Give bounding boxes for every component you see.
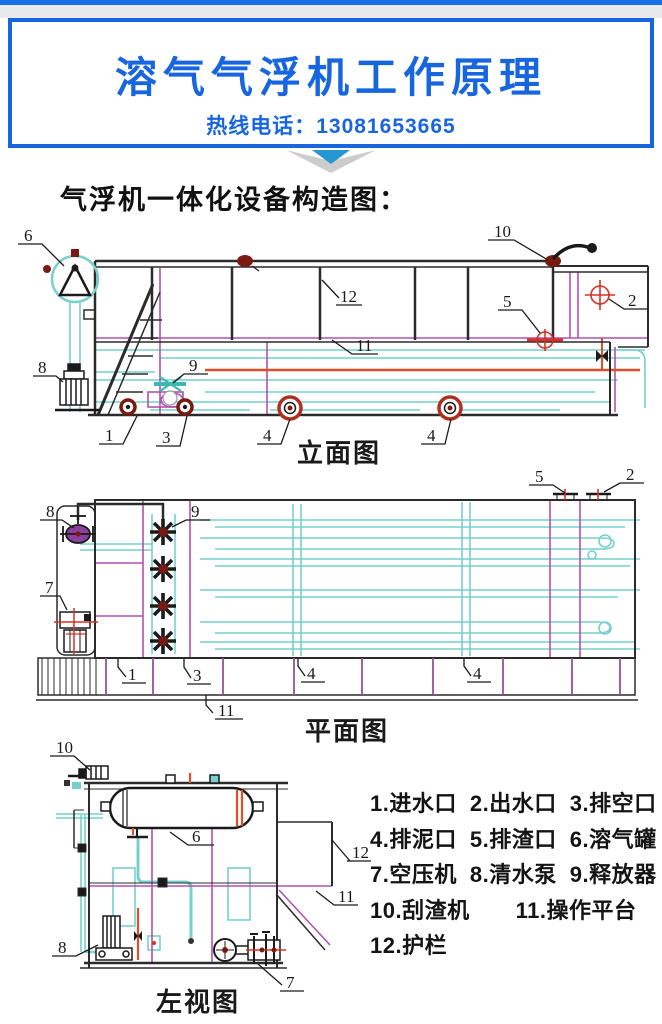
part-number-label: 1 (105, 426, 114, 445)
part-number-label: 8 (38, 358, 47, 377)
legend-item: 1.进水口 (370, 791, 457, 816)
part-number-label: 1 (128, 665, 137, 684)
teal-pipes (70, 302, 645, 412)
legend-item: 9.释放器 (570, 862, 657, 887)
part-number-label: 11 (218, 701, 234, 720)
legend: 1.进水口2.出水口3.排空口4.排泥口5.排渣口6.溶气罐7.空压机8.清水泵… (370, 786, 662, 964)
legend-item: 2.出水口 (470, 791, 557, 816)
part-number-label: 11 (338, 887, 354, 906)
part-number-label: 8 (58, 938, 67, 957)
legend-item: 8.清水泵 (470, 862, 557, 887)
hotline-number: 13081653665 (316, 115, 455, 138)
legend-row: 7.空压机8.清水泵9.释放器 (370, 857, 662, 893)
top-gray-strip (0, 5, 662, 18)
legend-item: 11.操作平台 (516, 898, 637, 923)
part-number-label: 5 (535, 467, 544, 486)
part-number-label: 9 (189, 356, 198, 375)
scraper-motor-icon (64, 766, 108, 789)
part-number-label: 10 (494, 222, 511, 241)
elevation-view-diagram: 610121152981344 (0, 222, 662, 466)
legend-row: 10.刮渣机11.操作平台 (370, 893, 662, 929)
part-number-label: 3 (162, 428, 171, 447)
part-number-label: 8 (46, 502, 55, 521)
part-number-label: 2 (626, 465, 635, 484)
dissolved-air-vessel-icon (43, 249, 98, 302)
skid-strip (36, 658, 638, 700)
compressor-icon (152, 932, 286, 966)
part-number-label: 10 (56, 738, 73, 757)
legend-item: 12.护栏 (370, 933, 447, 958)
pump-icon (55, 364, 100, 410)
part-number-label: 4 (473, 664, 482, 683)
legend-row: 1.进水口2.出水口3.排空口 (370, 786, 662, 822)
part-number-label: 4 (307, 664, 316, 683)
page-title: 溶气气浮机工作原理 (12, 44, 650, 105)
pump-icon (60, 516, 96, 543)
legend-item: 5.排渣口 (470, 827, 557, 852)
plan-view-diagram: 89752134411 (0, 464, 662, 746)
header-banner: 溶气气浮机工作原理 热线电话：13081653665 (8, 18, 654, 148)
compressor-icon (54, 608, 98, 654)
part-number-label: 11 (356, 336, 372, 355)
part-number-label: 12 (340, 287, 357, 306)
chevron-down-icon (286, 149, 376, 175)
legend-row: 12.护栏 (370, 928, 662, 964)
part-number-label: 4 (427, 426, 436, 445)
legend-item: 7.空压机 (370, 862, 457, 887)
part-number-label: 12 (352, 843, 369, 862)
legend-row: 4.排泥口5.排渣口6.溶气罐 (370, 822, 662, 858)
part-number-label: 9 (191, 502, 200, 521)
page: 溶气气浮机工作原理 热线电话：13081653665 气浮机一体化设备构造图： (0, 0, 662, 1024)
hotline-label: 热线电话： (206, 115, 316, 138)
releaser-icons (150, 519, 176, 654)
hotline: 热线电话：13081653665 (12, 110, 650, 140)
side-caption: 左视图 (123, 982, 273, 1019)
part-number-label: 6 (192, 827, 201, 846)
section-title: 气浮机一体化设备构造图： (60, 178, 408, 217)
legend-item: 4.排泥口 (370, 827, 457, 852)
part-number-label: 2 (628, 291, 637, 310)
part-number-label: 3 (193, 666, 202, 685)
legend-item: 10.刮渣机 (370, 898, 470, 923)
part-number-label: 7 (45, 578, 54, 597)
orange-pipe (205, 338, 640, 370)
part-number-label: 7 (286, 973, 295, 992)
part-number-label: 5 (503, 292, 512, 311)
legend-item: 3.排空口 (570, 791, 657, 816)
legend-item: 6.溶气罐 (570, 827, 657, 852)
part-number-label: 6 (24, 226, 33, 245)
